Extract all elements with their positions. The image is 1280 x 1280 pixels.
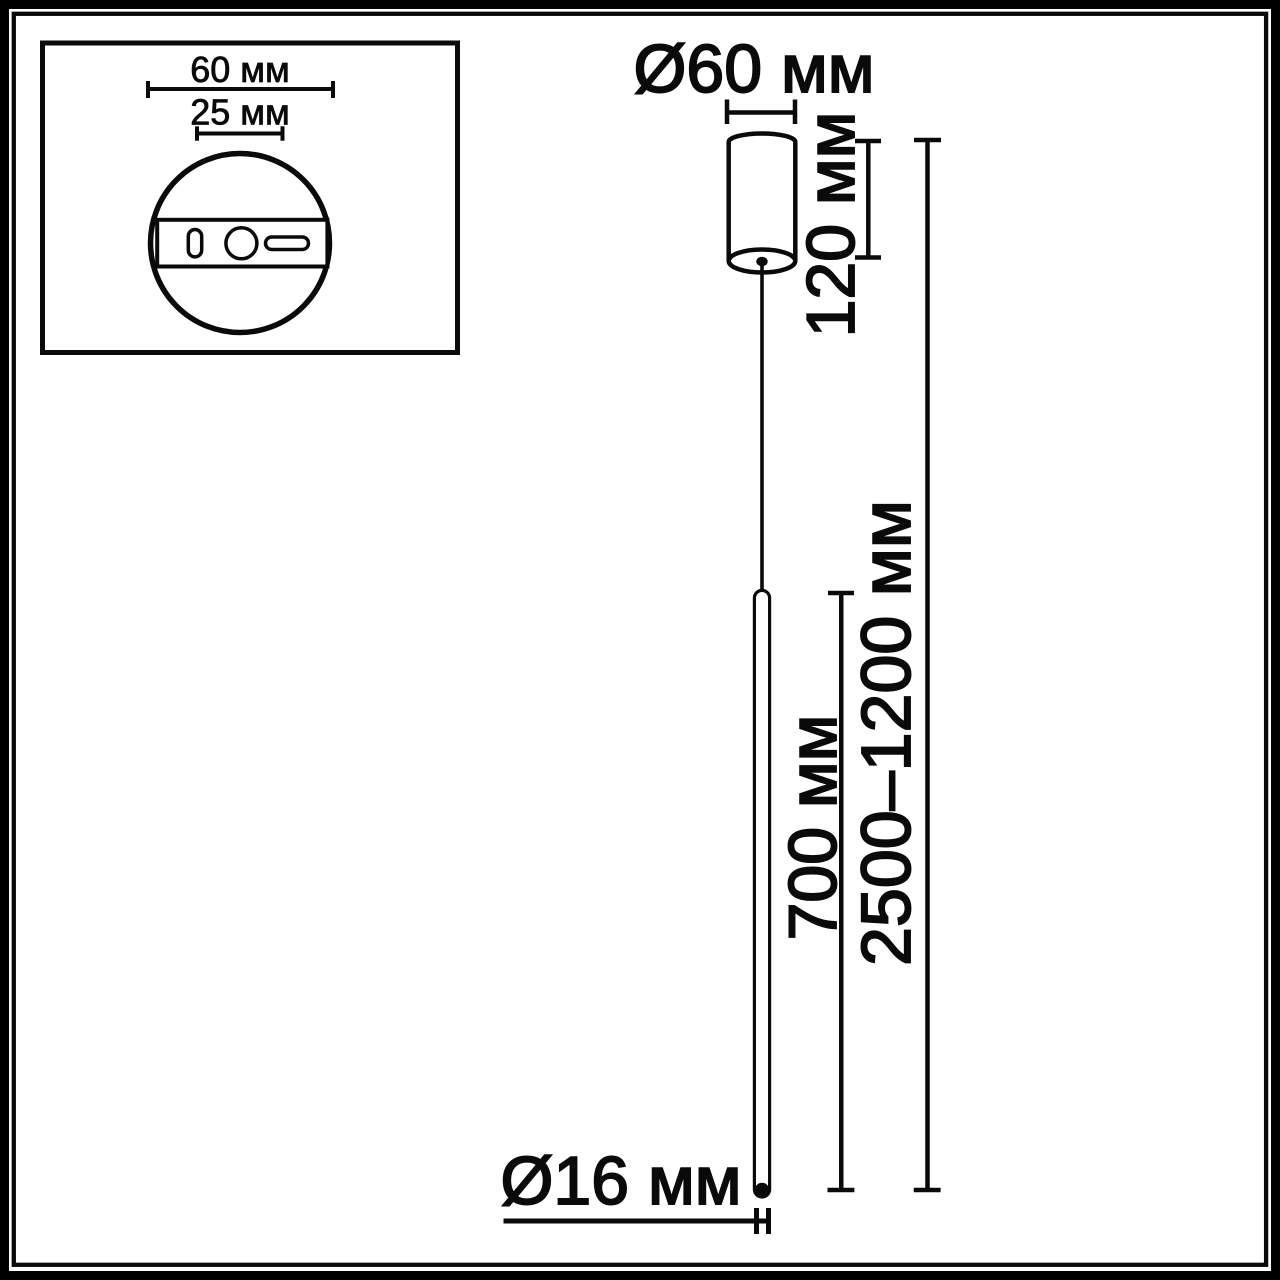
svg-text:Ø16 мм: Ø16 мм bbox=[501, 1143, 742, 1219]
svg-text:2500–1200 мм: 2500–1200 мм bbox=[847, 500, 925, 966]
svg-text:25 мм: 25 мм bbox=[190, 92, 290, 133]
svg-text:60 мм: 60 мм bbox=[190, 49, 290, 90]
svg-text:Ø60 мм: Ø60 мм bbox=[634, 31, 875, 107]
svg-text:120 мм: 120 мм bbox=[793, 112, 869, 338]
